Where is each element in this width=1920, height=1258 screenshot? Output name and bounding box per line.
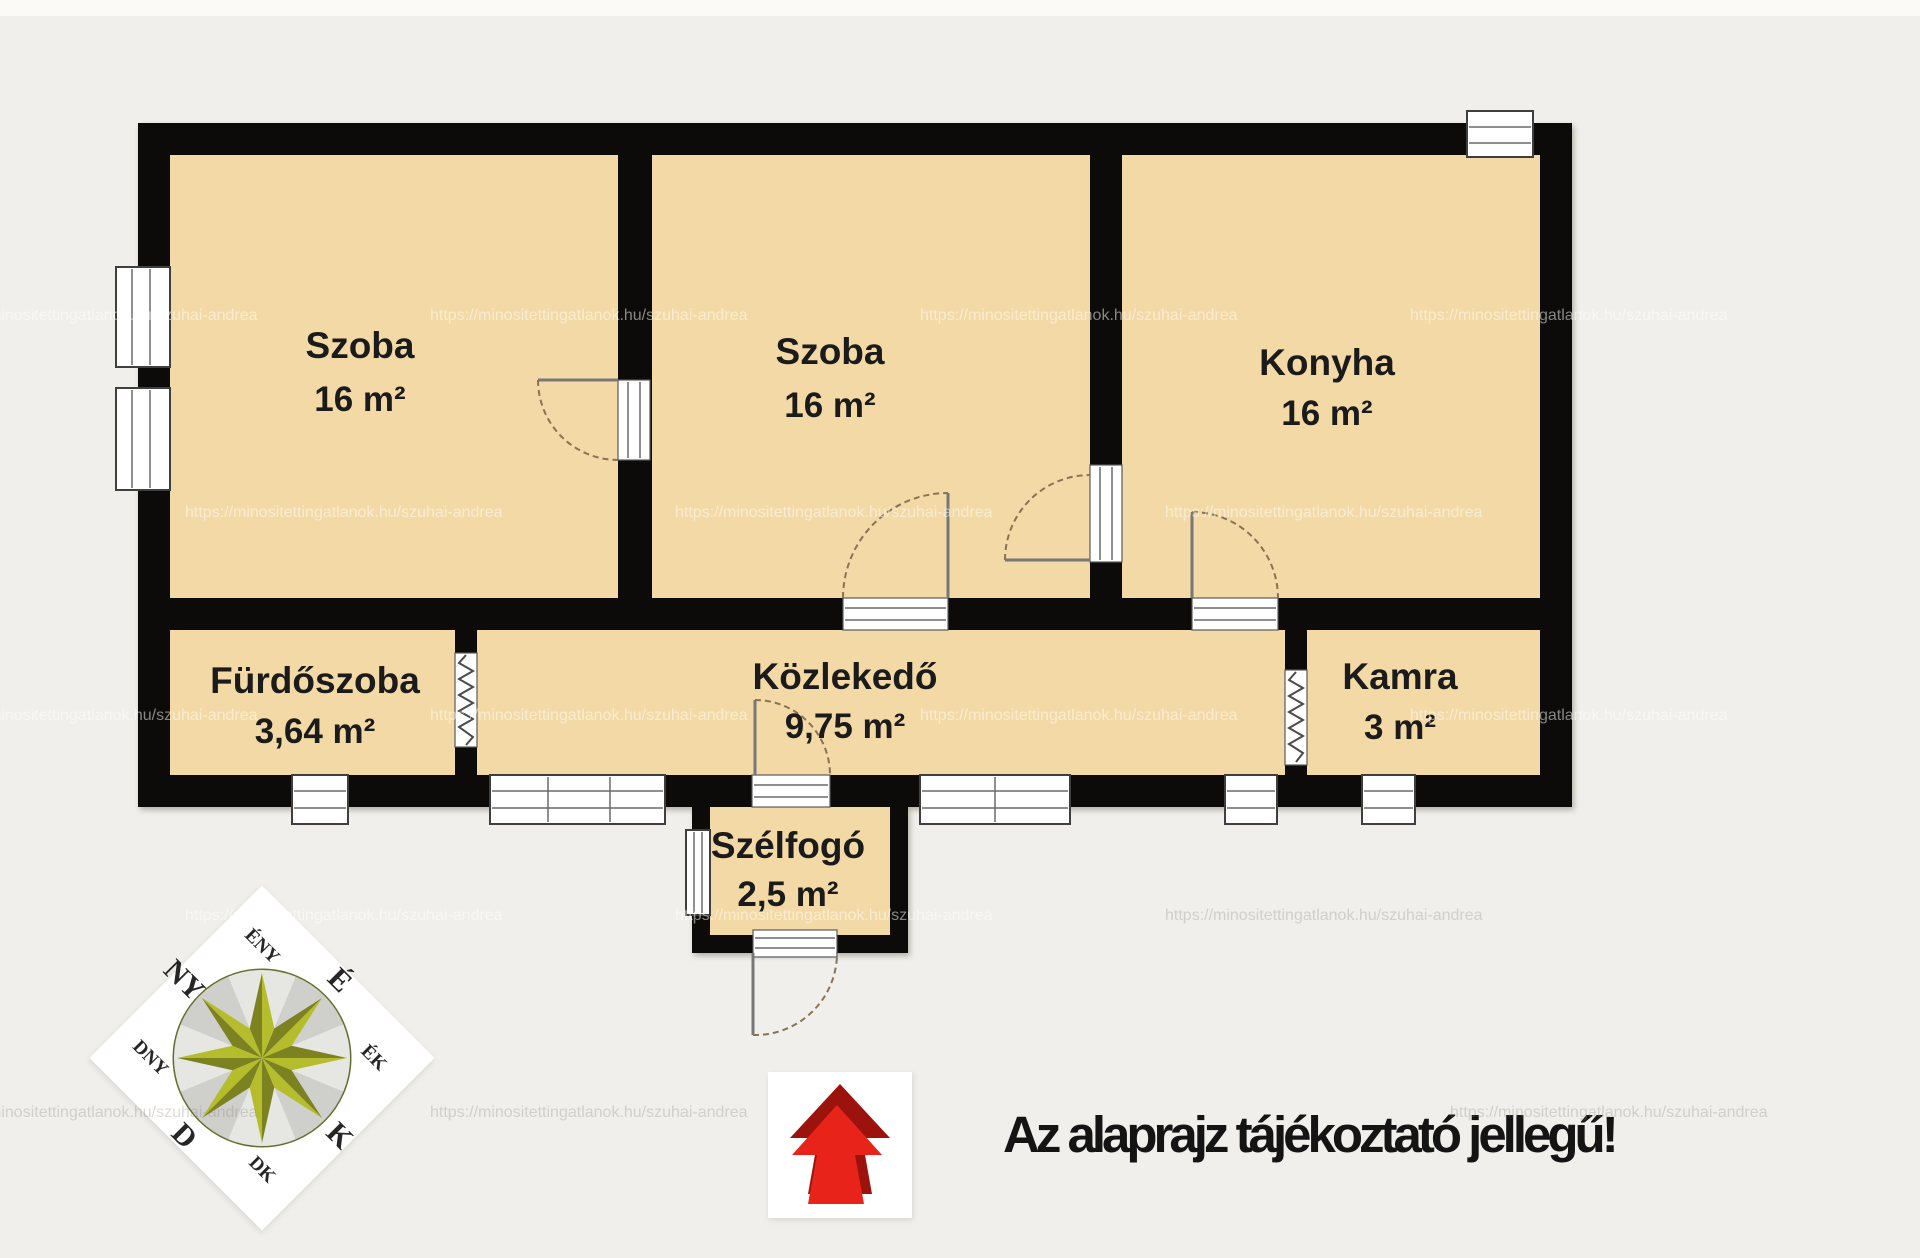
watermark-text: https://minositettingatlanok.hu/szuhai-a… xyxy=(1165,504,1483,521)
folding-door-icon xyxy=(1285,670,1307,765)
floorplan-svg: Szoba 16 m² Szoba 16 m² Konyha 16 m² Für… xyxy=(0,0,1920,1258)
window-icon xyxy=(1362,775,1415,824)
watermark-text: https://minositettingatlanok.hu/szuhai-a… xyxy=(675,504,993,521)
up-arrow-icon xyxy=(768,1072,912,1218)
door-opening xyxy=(843,598,948,630)
room-floor-szoba-2 xyxy=(652,155,1090,598)
window-icon xyxy=(292,775,348,824)
floorplan-canvas: Szoba 16 m² Szoba 16 m² Konyha 16 m² Für… xyxy=(0,0,1920,1258)
door-opening xyxy=(1192,598,1278,630)
watermark-text: https://minositettingatlanok.hu/szuhai-a… xyxy=(430,1104,748,1121)
watermark-text: https://minositettingatlanok.hu/szuhai-a… xyxy=(1165,907,1483,924)
window-icon xyxy=(490,775,665,824)
room-label-furdoszoba: Fürdőszoba xyxy=(210,660,420,701)
room-area-szoba-2: 16 m² xyxy=(784,386,875,425)
watermark-text: https://minositettingatlanok.hu/szuhai-a… xyxy=(185,504,503,521)
watermark-text: https://minositettingatlanok.hu/szuhai-a… xyxy=(1450,1104,1768,1121)
room-floor-kamra xyxy=(1307,630,1540,775)
watermark-text: https://minositettingatlanok.hu/szuhai-a… xyxy=(920,307,1238,324)
room-label-konyha: Konyha xyxy=(1259,342,1395,383)
watermark-text: https://minositettingatlanok.hu/szuhai-a… xyxy=(920,707,1238,724)
room-label-szoba-1: Szoba xyxy=(306,325,415,366)
watermark-text: https://minositettingatlanok.hu/szuhai-a… xyxy=(0,707,258,724)
window-icon xyxy=(1467,111,1533,157)
watermark-text: https://minositettingatlanok.hu/szuhai-a… xyxy=(430,707,748,724)
room-floor-kozlekedo xyxy=(477,630,1285,775)
room-label-szelfogo: Szélfogó xyxy=(711,825,865,866)
top-strip xyxy=(0,0,1920,16)
door-opening xyxy=(618,380,650,460)
room-label-szoba-2: Szoba xyxy=(776,331,885,372)
window-icon xyxy=(686,830,710,915)
room-area-kozlekedo: 9,75 m² xyxy=(785,707,906,746)
room-area-konyha: 16 m² xyxy=(1281,394,1372,433)
door-opening xyxy=(752,775,830,807)
watermark-text: https://minositettingatlanok.hu/szuhai-a… xyxy=(1410,707,1728,724)
room-label-kamra: Kamra xyxy=(1342,656,1458,697)
watermark-text: https://minositettingatlanok.hu/szuhai-a… xyxy=(0,1104,258,1121)
watermark-text: https://minositettingatlanok.hu/szuhai-a… xyxy=(185,907,503,924)
room-floor-furdoszoba xyxy=(170,630,455,775)
folding-door-icon xyxy=(455,653,477,747)
door-opening xyxy=(753,930,837,957)
watermark-text: https://minositettingatlanok.hu/szuhai-a… xyxy=(1410,307,1728,324)
window-icon xyxy=(1225,775,1277,824)
watermark-text: https://minositettingatlanok.hu/szuhai-a… xyxy=(675,907,993,924)
window-icon xyxy=(116,388,170,490)
door-opening xyxy=(1090,465,1122,562)
room-floor-szoba-1 xyxy=(170,155,618,598)
watermark-text: https://minositettingatlanok.hu/szuhai-a… xyxy=(430,307,748,324)
room-area-furdoszoba: 3,64 m² xyxy=(255,712,376,751)
watermark-text: https://minositettingatlanok.hu/szuhai-a… xyxy=(0,307,258,324)
window-icon xyxy=(920,775,1070,824)
room-area-szoba-1: 16 m² xyxy=(314,380,405,419)
room-label-kozlekedo: Közlekedő xyxy=(752,656,937,697)
